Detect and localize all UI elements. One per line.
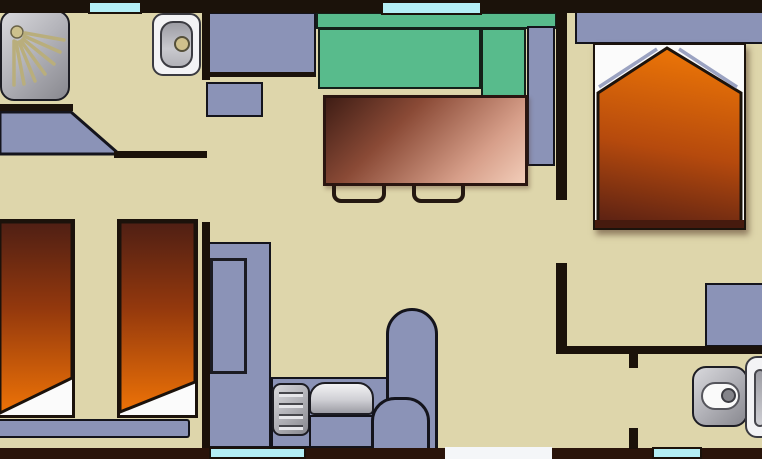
wc-basin (745, 356, 762, 438)
kitchen-counter-inset (210, 258, 247, 374)
wardrobe (705, 283, 762, 347)
kitchen-sink (309, 382, 374, 415)
wall-master-west-lower (556, 263, 567, 347)
kitchen-sink-cabinet (309, 415, 374, 448)
wall-master-south (556, 346, 762, 354)
wall-twin-bedroom-east (202, 222, 210, 448)
toilet (692, 366, 748, 427)
open-door-leaf (0, 109, 122, 157)
wall-bathroom-south (0, 104, 73, 111)
headboard-shelf (575, 11, 762, 44)
kitchen-appliance (206, 82, 263, 117)
window-bottom-kitchen (209, 447, 306, 459)
wall-bathroom-east (202, 0, 210, 80)
entrance-door-opening (445, 447, 552, 459)
chair-1 (332, 186, 386, 203)
stove-grill-bar (279, 403, 303, 408)
stove-grill-bar (279, 414, 303, 419)
chair-2 (412, 186, 465, 203)
stove-grill-bar (279, 392, 303, 397)
kitchen-counter-top (206, 12, 316, 77)
wall-twin-bedroom-north (114, 151, 207, 158)
dining-table (323, 95, 528, 186)
side-cabinet (527, 26, 555, 166)
twin-bed-2 (117, 219, 198, 418)
wall-bottom (0, 448, 762, 459)
sofa-seat (318, 28, 481, 89)
washbasin-drain (174, 36, 190, 52)
stove-hob (272, 383, 310, 436)
stove-grill-bar (279, 425, 303, 430)
kitchen-counter-l-vertical (206, 242, 271, 448)
floor-plan (0, 0, 762, 459)
wall-wc-door-stub-top (629, 354, 638, 368)
bed-foot-bench (0, 419, 190, 438)
wc-basin-bowl (754, 369, 762, 427)
wall-master-west-upper (556, 8, 567, 200)
round-seat-small (371, 397, 430, 452)
double-bed (593, 43, 746, 230)
toilet-flush (721, 388, 736, 403)
window-top-bathroom (88, 1, 142, 14)
wall-wc-door-stub-bottom (629, 428, 638, 449)
shower-spray-icon (2, 12, 68, 99)
shower (0, 10, 70, 101)
window-top-living (381, 1, 482, 15)
window-bottom-wc (652, 447, 702, 459)
washbasin (152, 13, 201, 76)
twin-bed-1 (0, 219, 75, 418)
